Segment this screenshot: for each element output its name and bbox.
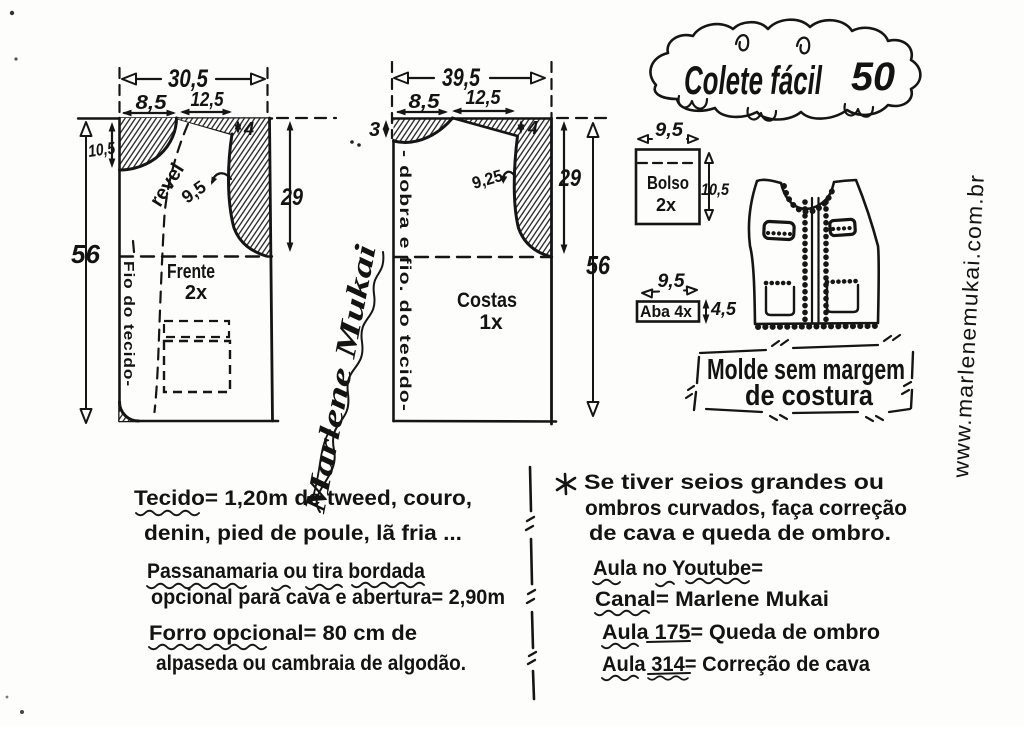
svg-text:10,5: 10,5 [701, 180, 729, 199]
svg-text:denin, pied de poule, lã: denin, pied de poule, lã fria ... [144, 521, 462, 545]
svg-text:2x: 2x [185, 282, 207, 304]
svg-text:ombros curvados, faça corre: ombros curvados, faça correção [585, 496, 907, 520]
svg-text:de cava e queda de ombro.: de cava e queda de ombro. [589, 521, 891, 545]
svg-text:3: 3 [369, 119, 380, 141]
svg-text:29: 29 [280, 184, 303, 211]
svg-text:Canal= Marlene Mukai: Canal= Marlene Mukai [595, 587, 829, 611]
svg-text:9,5: 9,5 [655, 120, 683, 141]
svg-text:de costura: de costura [745, 380, 874, 412]
svg-text:8,5: 8,5 [409, 91, 441, 113]
svg-text:Aula 175= Queda de ombro: Aula 175= Queda de ombro [602, 620, 880, 644]
svg-text:Costas: Costas [457, 289, 517, 312]
svg-text:Tecido= 1,20m de tweed, cour: Tecido= 1,20m de tweed, couro, [134, 486, 472, 510]
svg-text:Forro opcional= 80 cm de: Forro opcional= 80 cm de [149, 621, 417, 645]
svg-text:alpaseda ou cambraia de al: alpaseda ou cambraia de algodão. [156, 651, 466, 675]
svg-text:9,5: 9,5 [658, 271, 685, 292]
svg-text:50: 50 [851, 55, 895, 99]
svg-text:- dobra e fio. do tecido-: - dobra e fio. do tecido- [396, 150, 413, 412]
svg-text:opcional para cava e abert: opcional para cava e abertura= 2,90m [151, 585, 505, 609]
svg-text:56: 56 [586, 250, 610, 280]
svg-text:29: 29 [558, 165, 581, 192]
svg-text:Aula no Youtube=: Aula no Youtube= [593, 556, 763, 580]
svg-text:Colete fácil: Colete fácil [684, 59, 823, 103]
svg-text:1x: 1x [479, 311, 503, 334]
svg-text:10,5: 10,5 [87, 138, 117, 161]
svg-text:2x: 2x [656, 195, 676, 215]
svg-text:56: 56 [71, 239, 101, 269]
svg-text:12,5: 12,5 [191, 89, 225, 111]
svg-text:Bolso: Bolso [647, 173, 689, 193]
svg-text:Aba 4x: Aba 4x [640, 302, 693, 321]
svg-text:4,5: 4,5 [710, 299, 737, 319]
svg-text:Se tiver seios grandes ou: Se tiver seios grandes ou [584, 470, 884, 494]
svg-text:4: 4 [527, 118, 538, 138]
svg-text:Aula 314= Correção de cava: Aula 314= Correção de cava [602, 652, 871, 676]
svg-text:8,5: 8,5 [136, 92, 168, 114]
svg-text:Passanamaria ou tira bordad: Passanamaria ou tira bordada [147, 559, 426, 583]
svg-text:12,5: 12,5 [466, 87, 502, 109]
svg-text:Fio do tecido-: Fio do tecido- [120, 261, 137, 387]
svg-text:4: 4 [243, 119, 254, 139]
svg-text:Frente: Frente [167, 261, 215, 283]
